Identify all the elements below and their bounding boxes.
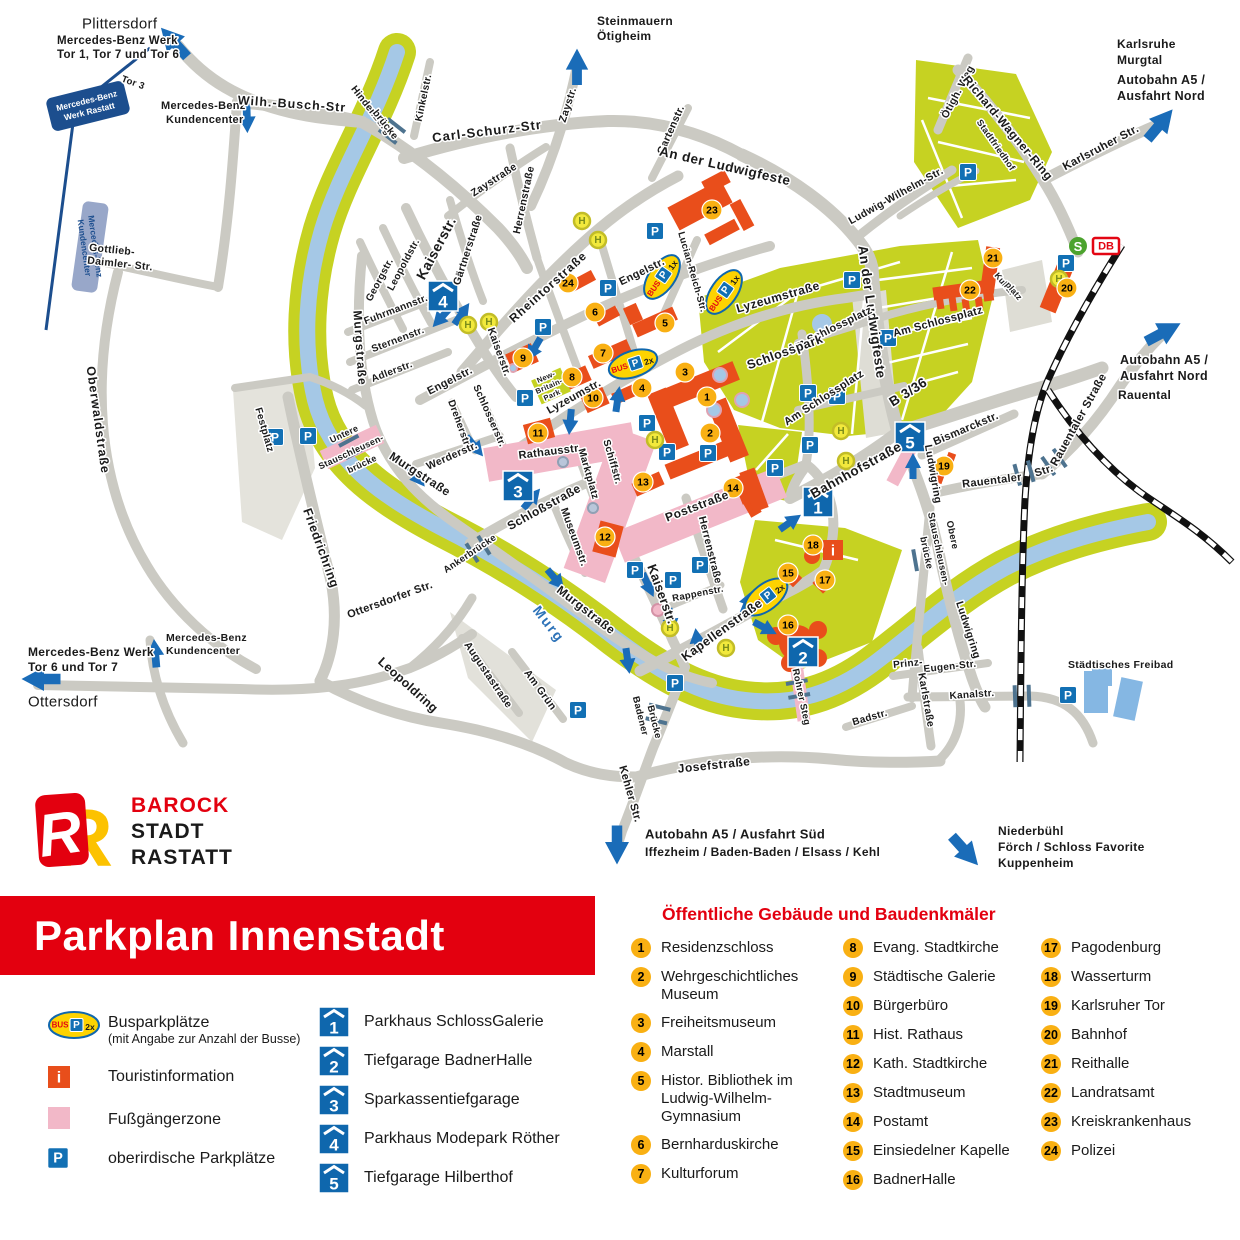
svg-text:6: 6 [592, 307, 598, 319]
parking-icon: P [600, 280, 617, 297]
svg-text:Murgtal: Murgtal [1117, 53, 1162, 67]
poi-badge-16: 16 [843, 1170, 863, 1190]
svg-text:Zaystraße: Zaystraße [469, 161, 519, 200]
poi-label-5: Histor. Bibliothek im Ludwig-Wilhelm-Gym… [661, 1071, 829, 1126]
map-label: Bahnhofstraße [808, 439, 904, 501]
poi-badge-17: 17 [1041, 938, 1061, 958]
map-label: Karlsruhe [1117, 37, 1176, 51]
poi-badge-13: 13 [843, 1083, 863, 1103]
map-label: Rauental [1118, 388, 1171, 402]
map-label: Ottersdorf [28, 694, 98, 711]
map-label: Badstr. [851, 708, 889, 729]
poi-label-7: Kulturforum [661, 1164, 829, 1184]
parking-icon: P [1060, 687, 1077, 704]
poi-label-9: Städtische Galerie [873, 967, 1038, 987]
poi-badge-4: 4 [631, 1042, 651, 1062]
poi-label-20: Bahnhof [1071, 1025, 1231, 1045]
poi-label-13: Stadtmuseum [873, 1083, 1038, 1103]
svg-text:i: i [57, 1070, 61, 1087]
map-label: Steinmauern [597, 14, 673, 28]
svg-text:P: P [1064, 689, 1072, 703]
poi-item-10: 10Bürgerbüro [843, 996, 1038, 1016]
svg-text:Ötigheim: Ötigheim [597, 28, 651, 43]
parking-icon: P [535, 319, 552, 336]
map-label: Tor 1, Tor 7 und Tor 6 [57, 49, 179, 61]
sbahn-logo: S [1069, 237, 1087, 255]
svg-text:Kundencenter: Kundencenter [166, 645, 240, 657]
svg-text:9: 9 [520, 353, 526, 365]
poi-item-3: 3Freiheitsmuseum [631, 1013, 829, 1033]
poi-item-1: 1Residenzschloss [631, 938, 829, 958]
parking-garage-icon-2: 2 [318, 1045, 350, 1077]
svg-text:1: 1 [329, 1019, 338, 1038]
svg-text:3: 3 [682, 367, 688, 379]
poi-marker-2: 2 [700, 423, 720, 443]
svg-text:P: P [521, 392, 529, 406]
parking-icon: P [647, 223, 664, 240]
svg-text:14: 14 [727, 483, 739, 495]
svg-text:20: 20 [1061, 283, 1073, 295]
parkhaus-item-4: 4Parkhaus Modepark Röther [318, 1123, 560, 1155]
parkhaus-label-3: Sparkassentiefgarage [364, 1091, 520, 1109]
poi-column-3: 17Pagodenburg18Wasserturm19Karlsruher To… [1041, 938, 1231, 1170]
svg-text:H: H [578, 216, 585, 227]
svg-text:P: P [964, 166, 972, 180]
legend-busparkplaetze-sub: (mit Angabe zur Anzahl der Busse) [108, 1032, 300, 1047]
parkhaus-legend: 1Parkhaus SchlossGalerie2Tiefgarage Badn… [318, 1006, 560, 1201]
svg-text:DB: DB [1098, 241, 1114, 253]
poi-badge-12: 12 [843, 1054, 863, 1074]
svg-text:Oberwaldstraße: Oberwaldstraße [84, 365, 113, 474]
svg-text:P: P [631, 564, 639, 578]
map-label: Engelstr. [425, 364, 474, 397]
map-label: Sternenstr. [370, 325, 426, 355]
poi-badge-1: 1 [631, 938, 651, 958]
building [667, 179, 732, 230]
svg-text:P: P [574, 704, 582, 718]
svg-text:P: P [884, 332, 892, 346]
poi-marker-3: 3 [675, 362, 695, 382]
poi-label-17: Pagodenburg [1071, 938, 1231, 958]
svg-text:Rauentaler: Rauentaler [962, 471, 1023, 490]
legend-fussgaengerzone: Fußgängerzone [46, 1107, 316, 1129]
poi-badge-9: 9 [843, 967, 863, 987]
legend-fussgaengerzone-label: Fußgängerzone [108, 1107, 221, 1129]
parking-icon: P [692, 557, 709, 574]
poi-label-22: Landratsamt [1071, 1083, 1231, 1103]
poi-label-1: Residenzschloss [661, 938, 829, 958]
svg-text:Karlsruhe: Karlsruhe [1117, 37, 1176, 51]
poi-badge-24: 24 [1041, 1141, 1061, 1161]
svg-text:P: P [643, 417, 651, 431]
svg-text:Iffezheim / Baden-Baden / Elsa: Iffezheim / Baden-Baden / Elsass / Kehl [645, 845, 880, 859]
poi-marker-23: 23 [702, 200, 722, 220]
poi-label-11: Hist. Rathaus [873, 1025, 1038, 1045]
svg-text:2: 2 [707, 428, 713, 440]
poi-badge-20: 20 [1041, 1025, 1061, 1045]
map-dot [713, 368, 727, 382]
svg-text:P: P [771, 462, 779, 476]
map-label: Tor 6 und Tor 7 [28, 660, 118, 674]
svg-text:Niederbühl: Niederbühl [998, 824, 1064, 838]
svg-text:S: S [1074, 239, 1083, 254]
poi-column-1: 1Residenzschloss2Wehrgeschichtliches Mus… [631, 938, 829, 1193]
svg-text:Förch / Schloss Favorite: Förch / Schloss Favorite [998, 840, 1145, 854]
svg-text:H: H [837, 426, 844, 437]
map-label: Förch / Schloss Favorite [998, 840, 1145, 854]
poi-item-22: 22Landratsamt [1041, 1083, 1231, 1103]
bus-stop-icon: H [833, 423, 849, 439]
svg-text:Städtisches Freibad: Städtisches Freibad [1068, 659, 1173, 671]
svg-text:11: 11 [532, 428, 543, 440]
map-label: Mercedes-Benz Werk [28, 645, 154, 659]
poi-marker-8: 8 [562, 367, 582, 387]
svg-text:Mercedes-Benz: Mercedes-Benz [161, 100, 246, 112]
svg-text:P: P [304, 430, 312, 444]
svg-text:Josefstraße: Josefstraße [677, 754, 751, 776]
parkhaus-item-1: 1Parkhaus SchlossGalerie [318, 1006, 560, 1038]
svg-text:8: 8 [569, 372, 575, 384]
parkhaus-item-3: 3Sparkassentiefgarage [318, 1084, 560, 1116]
road [218, 102, 237, 287]
poi-badge-14: 14 [843, 1112, 863, 1132]
bus-stop-icon: H [590, 232, 606, 248]
poi-label-4: Marstall [661, 1042, 829, 1062]
poi-label-12: Kath. Stadtkirche [873, 1054, 1038, 1074]
map-label: Murgtal [1117, 53, 1162, 67]
barock-stadt-rastatt-logo: R R BAROCK STADT RASTATT [35, 786, 233, 878]
logo-word-stadt: STADT [131, 819, 233, 845]
map-legend: BUSP2xBusparkplätze(mit Angabe zur Anzah… [46, 1010, 316, 1187]
poi-item-18: 18Wasserturm [1041, 967, 1231, 987]
poi-marker-4: 4 [632, 378, 652, 398]
poi-badge-10: 10 [843, 996, 863, 1016]
poi-label-15: Einsiedelner Kapelle [873, 1141, 1038, 1161]
parking-icon: P [1058, 255, 1075, 272]
map-dot [735, 393, 749, 407]
svg-text:4: 4 [329, 1136, 339, 1155]
svg-text:3: 3 [329, 1097, 338, 1116]
map-label: Ausfahrt Nord [1120, 369, 1208, 383]
poi-item-17: 17Pagodenburg [1041, 938, 1231, 958]
poi-marker-15: 15 [778, 563, 798, 583]
legend-busparkplaetze-label: Busparkplätze [108, 1010, 300, 1032]
map-dot [558, 457, 568, 467]
parking-icon: P [639, 415, 656, 432]
legend-parkplaetze-label: oberirdische Parkplätze [108, 1146, 275, 1168]
poi-label-8: Evang. Stadtkirche [873, 938, 1038, 958]
poi-item-5: 5Histor. Bibliothek im Ludwig-Wilhelm-Gy… [631, 1071, 829, 1126]
map-label: Oberwaldstraße [84, 365, 113, 474]
parking-icon: P [517, 390, 534, 407]
svg-text:Ausfahrt Nord: Ausfahrt Nord [1117, 89, 1205, 103]
svg-text:17: 17 [819, 575, 831, 587]
parking-garage-icon-4: 4 [318, 1123, 350, 1155]
rastatt-r-monogram-icon: R R [35, 786, 117, 878]
poi-heading: Öffentliche Gebäude und Baudenkmäler [662, 904, 996, 925]
svg-text:15: 15 [782, 568, 794, 580]
bus-stop-icon: H [718, 640, 734, 656]
map-label: Ottersdorfer Str. [346, 579, 435, 621]
poi-label-3: Freiheitsmuseum [661, 1013, 829, 1033]
map-label: Karlsruher Str. [1061, 123, 1141, 173]
svg-text:H: H [594, 235, 601, 246]
svg-text:BUS: BUS [52, 1021, 70, 1030]
svg-text:Ausfahrt Nord: Ausfahrt Nord [1120, 369, 1208, 383]
poi-badge-3: 3 [631, 1013, 651, 1033]
svg-text:H: H [651, 435, 658, 446]
svg-text:Kinkelstr.: Kinkelstr. [414, 73, 435, 122]
parking-icon: P [844, 272, 861, 289]
road [618, 667, 685, 844]
map-label: Zaystraße [469, 161, 519, 200]
svg-text:Tor 6 und Tor 7: Tor 6 und Tor 7 [28, 660, 118, 674]
poi-marker-13: 13 [633, 472, 653, 492]
parking-icon: P [570, 702, 587, 719]
svg-text:P: P [73, 1020, 80, 1031]
legend-parkplaetze: Poberirdische Parkplätze [46, 1146, 316, 1170]
svg-text:Badstr.: Badstr. [851, 708, 889, 729]
svg-text:Bahnhofstraße: Bahnhofstraße [808, 439, 904, 501]
svg-text:P: P [704, 447, 712, 461]
parking-icon: P [667, 675, 684, 692]
poi-marker-1: 1 [697, 387, 717, 407]
map-label: Rauentaler [962, 471, 1023, 490]
building [704, 219, 740, 246]
poi-marker-16: 16 [778, 615, 798, 635]
poi-item-11: 11Hist. Rathaus [843, 1025, 1038, 1045]
svg-text:12: 12 [599, 532, 611, 544]
poi-column-2: 8Evang. Stadtkirche9Städtische Galerie10… [843, 938, 1038, 1199]
parkhaus-item-2: 2Tiefgarage BadnerHalle [318, 1045, 560, 1077]
tourist-info-icon: i [46, 1064, 72, 1090]
svg-text:i: i [831, 543, 835, 560]
poi-badge-15: 15 [843, 1141, 863, 1161]
svg-text:5: 5 [329, 1175, 338, 1194]
poi-marker-17: 17 [815, 570, 835, 590]
parking-icon: P [700, 445, 717, 462]
poi-badge-18: 18 [1041, 967, 1061, 987]
map-label: Josefstraße [677, 754, 751, 776]
svg-text:H: H [485, 317, 492, 328]
map-label: Autobahn A5 / Ausfahrt Süd [645, 827, 825, 842]
svg-text:3: 3 [513, 483, 522, 502]
poi-badge-11: 11 [843, 1025, 863, 1045]
svg-text:2: 2 [329, 1058, 338, 1077]
logo-word-barock: BAROCK [131, 793, 233, 819]
svg-text:Engelstr.: Engelstr. [425, 364, 474, 397]
poi-badge-7: 7 [631, 1164, 651, 1184]
poi-label-16: BadnerHalle [873, 1170, 1038, 1190]
map-label: Ausfahrt Nord [1117, 89, 1205, 103]
poi-item-23: 23Kreiskrankenhaus [1041, 1112, 1231, 1132]
map-label: Städtisches Freibad [1068, 659, 1173, 671]
parking-garage-icon-3: 3 [503, 471, 533, 502]
poi-label-21: Reithalle [1071, 1054, 1231, 1074]
map-label: Plittersdorf [82, 16, 158, 33]
poi-item-8: 8Evang. Stadtkirche [843, 938, 1038, 958]
map-label: Ötigheim [597, 28, 651, 43]
svg-text:7: 7 [600, 348, 606, 360]
parking-garage-icon-4: 4 [428, 281, 458, 312]
poi-badge-19: 19 [1041, 996, 1061, 1016]
svg-text:P: P [848, 274, 856, 288]
map-label: Obere [944, 520, 961, 551]
bus-stop-icon: H [574, 213, 590, 229]
svg-text:19: 19 [938, 461, 950, 473]
poi-label-19: Karlsruher Tor [1071, 996, 1231, 1016]
poi-label-24: Polizei [1071, 1141, 1231, 1161]
svg-text:P: P [663, 446, 671, 460]
svg-text:Mercedes-Benz Werk: Mercedes-Benz Werk [28, 645, 154, 659]
poi-label-14: Postamt [873, 1112, 1038, 1132]
svg-text:4: 4 [438, 293, 448, 312]
page-title: Parkplan Innenstadt [0, 896, 595, 975]
parking-icon: P [802, 437, 819, 454]
poi-item-24: 24Polizei [1041, 1141, 1231, 1161]
svg-text:Sternenstr.: Sternenstr. [370, 325, 426, 355]
poi-marker-5: 5 [655, 313, 675, 333]
svg-text:2x: 2x [85, 1022, 95, 1032]
svg-text:Rauental: Rauental [1118, 388, 1171, 402]
mercedes-box: Mercedes-BenzWerk Rastatt [45, 80, 131, 132]
poi-marker-11: 11 [528, 423, 548, 443]
svg-text:Ottersdorf: Ottersdorf [28, 694, 98, 711]
svg-text:Autobahn A5 /: Autobahn A5 / [1117, 73, 1205, 87]
poi-marker-6: 6 [585, 302, 605, 322]
svg-text:P: P [604, 282, 612, 296]
parking-icon: P [627, 562, 644, 579]
map-label: Niederbühl [998, 824, 1064, 838]
svg-text:16: 16 [782, 620, 794, 632]
poi-item-4: 4Marstall [631, 1042, 829, 1062]
parking-icon: P [767, 460, 784, 477]
svg-text:Plittersdorf: Plittersdorf [82, 16, 158, 33]
poi-item-14: 14Postamt [843, 1112, 1038, 1132]
parkhaus-label-2: Tiefgarage BadnerHalle [364, 1052, 532, 1070]
parkhaus-label-4: Parkhaus Modepark Röther [364, 1130, 560, 1148]
road [320, 681, 636, 777]
svg-text:Ottersdorfer Str.: Ottersdorfer Str. [346, 579, 435, 621]
building [1113, 677, 1143, 721]
svg-text:P: P [671, 677, 679, 691]
poi-item-20: 20Bahnhof [1041, 1025, 1231, 1045]
parking-garage-icon-2: 2 [788, 637, 818, 668]
map-label: Mercedes-Benz Werk [57, 35, 178, 47]
poi-item-7: 7Kulturforum [631, 1164, 829, 1184]
map-label: Kuppenheim [998, 856, 1074, 870]
svg-text:21: 21 [987, 253, 999, 265]
svg-text:Tor 1, Tor 7 und Tor 6: Tor 1, Tor 7 und Tor 6 [57, 49, 179, 61]
poi-marker-9: 9 [513, 348, 533, 368]
tourist-info-icon: i [823, 540, 843, 560]
poi-item-19: 19Karlsruher Tor [1041, 996, 1231, 1016]
poi-item-13: 13Stadtmuseum [843, 1083, 1038, 1103]
parking-icon: P [300, 428, 317, 445]
poi-item-9: 9Städtische Galerie [843, 967, 1038, 987]
legend-touristinformation: iTouristinformation [46, 1064, 316, 1090]
poi-badge-21: 21 [1041, 1054, 1061, 1074]
svg-text:Autobahn A5 /: Autobahn A5 / [1120, 353, 1208, 367]
svg-text:P: P [651, 225, 659, 239]
poi-marker-21: 21 [983, 248, 1003, 268]
map-label: Kundencenter [166, 645, 240, 657]
svg-text:H: H [722, 643, 729, 654]
svg-text:Obere: Obere [944, 520, 961, 551]
bus-stop-icon: H [647, 432, 663, 448]
svg-text:5: 5 [905, 434, 914, 453]
svg-text:Karlsruher Str.: Karlsruher Str. [1061, 123, 1141, 173]
poi-label-2: Wehrgeschichtliches Museum [661, 967, 829, 1004]
poi-marker-22: 22 [960, 280, 980, 300]
map-label: Kinkelstr. [414, 73, 435, 122]
map-label: Mercedes-Benz [161, 100, 246, 112]
poi-label-23: Kreiskrankenhaus [1071, 1112, 1231, 1132]
bus-stop-icon: H [460, 317, 476, 333]
parking-icon: P [960, 164, 977, 181]
parking-garage-icon-1: 1 [318, 1006, 350, 1038]
map-dot [588, 503, 598, 513]
poi-marker-18: 18 [803, 535, 823, 555]
parkhaus-label-5: Tiefgarage Hilberthof [364, 1169, 513, 1187]
svg-text:P: P [669, 574, 677, 588]
poi-marker-12: 12 [595, 527, 615, 547]
parking-garage-icon-3: 3 [318, 1084, 350, 1116]
svg-text:22: 22 [964, 285, 976, 297]
poi-marker-7: 7 [593, 343, 613, 363]
poi-badge-5: 5 [631, 1071, 651, 1091]
svg-text:2: 2 [798, 649, 807, 668]
poi-label-6: Bernharduskirche [661, 1135, 829, 1155]
poi-marker-20: 20 [1057, 278, 1077, 298]
poi-badge-6: 6 [631, 1135, 651, 1155]
svg-text:P: P [539, 321, 547, 335]
legend-busparkplaetze: BUSP2xBusparkplätze(mit Angabe zur Anzah… [46, 1010, 316, 1047]
map-label: Mercedes-Benz [166, 632, 247, 644]
map-label: Autobahn A5 / [1117, 73, 1205, 87]
poi-badge-23: 23 [1041, 1112, 1061, 1132]
svg-text:P: P [696, 559, 704, 573]
direction-arrow [943, 828, 987, 873]
poi-item-6: 6Bernharduskirche [631, 1135, 829, 1155]
road [102, 272, 256, 669]
poi-label-10: Bürgerbüro [873, 996, 1038, 1016]
parkhaus-label-1: Parkhaus SchlossGalerie [364, 1013, 544, 1031]
poi-badge-2: 2 [631, 967, 651, 987]
poi-item-12: 12Kath. Stadtkirche [843, 1054, 1038, 1074]
svg-text:Kuppenheim: Kuppenheim [998, 856, 1074, 870]
road [938, 701, 960, 761]
legend-touristinformation-label: Touristinformation [108, 1064, 234, 1086]
svg-text:23: 23 [706, 205, 718, 217]
parking-icon: P [46, 1146, 70, 1170]
svg-text:Autobahn A5 / Ausfahrt Süd: Autobahn A5 / Ausfahrt Süd [645, 827, 825, 842]
pedestrian-zone-swatch [48, 1107, 70, 1129]
svg-text:P: P [806, 439, 814, 453]
svg-text:Kundencenter: Kundencenter [166, 114, 244, 126]
svg-text:13: 13 [637, 477, 649, 489]
poi-item-16: 16BadnerHalle [843, 1170, 1038, 1190]
parking-garage-icon-5: 5 [318, 1162, 350, 1194]
svg-text:Mercedes-Benz: Mercedes-Benz [166, 632, 247, 644]
svg-text:Steinmauern: Steinmauern [597, 14, 673, 28]
svg-text:18: 18 [807, 540, 819, 552]
svg-text:P: P [1062, 257, 1070, 271]
map-label: Kundencenter [166, 114, 244, 126]
bus-parking-icon: BUSP2x [46, 1010, 102, 1040]
svg-text:1: 1 [704, 392, 710, 404]
db-logo: DB [1093, 238, 1119, 254]
